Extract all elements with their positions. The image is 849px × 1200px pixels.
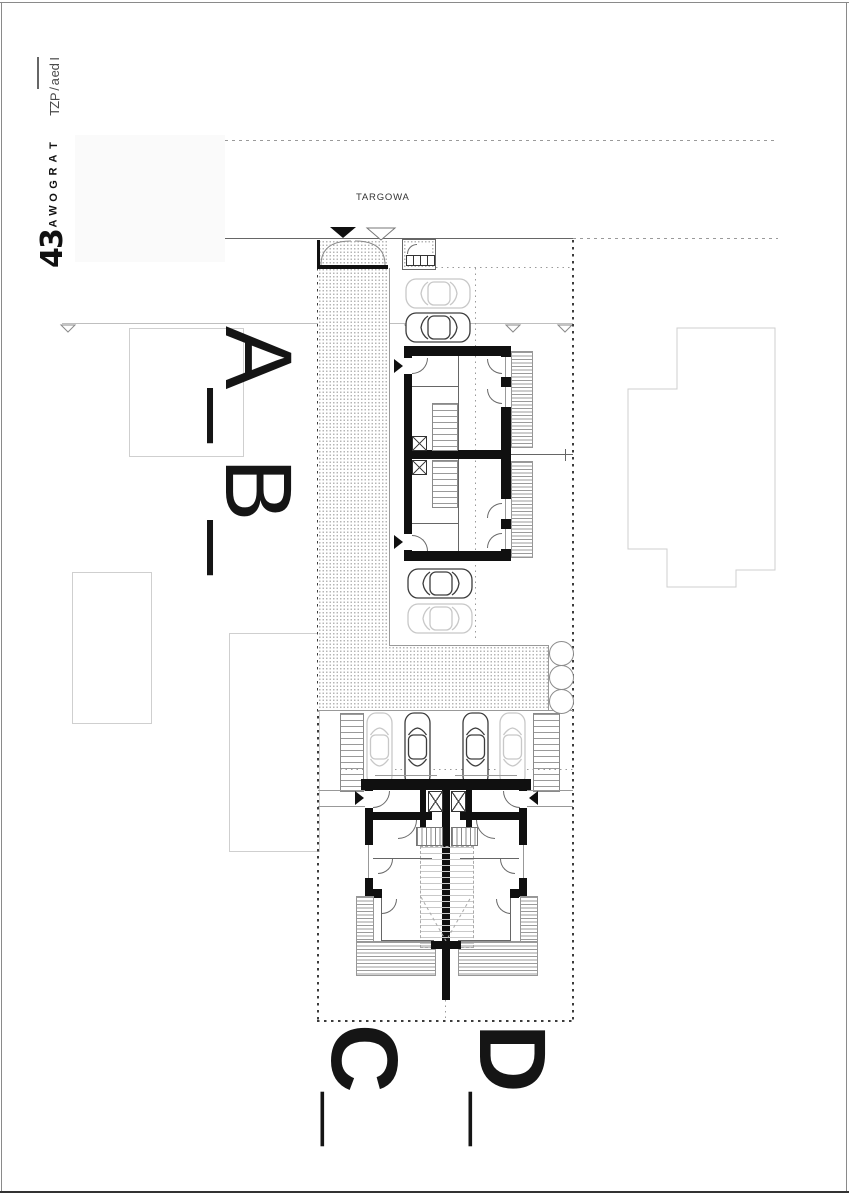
car-outline-light (405, 277, 471, 310)
party-wall-cross (431, 941, 461, 949)
section-marker-B: B_ (203, 458, 312, 574)
sidebar-rule (37, 57, 39, 89)
entrance-arrow-icon (355, 791, 364, 805)
door-arc (487, 359, 502, 374)
driveway-edge (318, 710, 573, 711)
vertical-char: A (47, 155, 60, 163)
driveway-edge (389, 268, 390, 646)
terrace-deck (356, 896, 374, 943)
bin (427, 255, 435, 266)
upper-entrance-gap (404, 534, 412, 550)
stairs (451, 827, 478, 846)
open-triangle-icon (60, 324, 76, 333)
window-line (368, 845, 369, 878)
interior-partition (458, 459, 459, 551)
driveway-paving (318, 268, 390, 646)
lower-entrance-gap (519, 791, 527, 808)
window-line (455, 775, 517, 776)
street-near-edge-line (225, 238, 573, 239)
tree-circle-icon (549, 641, 574, 666)
party-wall-axis-dotted (445, 1000, 446, 1022)
neighbor-building (72, 572, 152, 724)
door-arc (476, 820, 495, 839)
tree-circle-icon (549, 689, 574, 714)
entrance-arrow-open-icon (366, 227, 396, 241)
vertical-char: d (51, 63, 59, 70)
stairs (416, 827, 443, 846)
car-outline-dark (405, 311, 471, 344)
title-backplate (75, 135, 225, 262)
party-wall-extension-tick (565, 449, 566, 461)
interior-partition (412, 386, 459, 387)
door-arc (496, 899, 511, 914)
upper-building-wall-bottom (404, 551, 510, 561)
vertical-char: I (51, 57, 59, 61)
plot-boundary-right (572, 240, 574, 1022)
street-name-vertical: TARGOWA (42, 139, 66, 230)
window-gap (501, 529, 511, 549)
door-arc (373, 791, 390, 808)
vertical-char: T (47, 142, 60, 149)
door-arc (398, 820, 417, 839)
terrace-deck (520, 896, 538, 943)
upper-building-wall-top (404, 346, 510, 356)
page-border-bottom (0, 1191, 849, 1193)
window-line (505, 357, 506, 377)
shaft-box (412, 460, 427, 475)
vertical-char: W (47, 205, 60, 215)
driveway-paving-lower (318, 646, 549, 711)
window-line (505, 499, 506, 519)
vertical-char: O (48, 193, 61, 202)
car-outline-dark (407, 567, 473, 600)
vertical-char: G (48, 180, 61, 189)
neighbor-building (229, 633, 320, 852)
party-wall-extension-line (511, 454, 573, 455)
door-arc (378, 859, 393, 874)
section-marker-A: A_ (203, 326, 312, 442)
car-outline-light (407, 602, 473, 635)
page-border-right (846, 2, 847, 1193)
street-number-vertical: 34 (33, 229, 71, 267)
interior-partition (458, 356, 459, 450)
planting-strip (533, 713, 560, 792)
vertical-char: A (47, 220, 60, 228)
yard-top-line (436, 267, 573, 268)
stairs (432, 460, 458, 508)
vertical-char: 4 (43, 247, 62, 268)
vertical-char: 3 (43, 228, 62, 249)
street-label: TARGOWA (356, 192, 410, 203)
wall-corner (510, 889, 519, 898)
open-triangle-icon (557, 324, 573, 333)
vertical-char: T (51, 108, 59, 116)
interior-partition (412, 523, 459, 524)
neighbor-building (620, 320, 785, 595)
terrace-deck (511, 351, 533, 448)
window-gap (501, 499, 511, 519)
street-far-edge-line (225, 140, 778, 141)
lower-entrance-gap (365, 791, 373, 808)
door-arc (487, 503, 502, 518)
door-arc (487, 533, 502, 548)
entrance-arrow-icon (394, 535, 403, 549)
window-line (505, 529, 506, 549)
entrance-arrow-filled-icon (330, 227, 356, 238)
entrance-arrow-icon (529, 791, 538, 805)
terrace-deck (511, 461, 533, 558)
section-marker-D: D_ (457, 1024, 566, 1145)
upper-entrance-gap (404, 358, 412, 374)
window-line (505, 387, 506, 407)
open-triangle-icon (505, 324, 521, 333)
door-arc (412, 535, 428, 551)
walkway-line (318, 806, 365, 807)
project-label: Idea/PZT (44, 55, 66, 116)
door-arc (382, 899, 397, 914)
page-border-top (0, 2, 849, 3)
interior-wall (420, 790, 426, 827)
walkway-line (527, 806, 573, 807)
driveway-edge (390, 645, 549, 646)
shaft-box (412, 436, 427, 451)
interior-wall (466, 790, 472, 827)
stairs (432, 403, 458, 451)
plot-top-boundary-dashed (573, 238, 778, 239)
entrance-arrow-icon (394, 359, 403, 373)
page-border-left (1, 2, 2, 1193)
window-line (523, 845, 524, 878)
section-marker-C: C_ (309, 1024, 418, 1145)
tree-circle-icon (549, 665, 574, 690)
vertical-char: R (47, 168, 60, 176)
door-arc (487, 389, 502, 404)
wall-corner (373, 889, 382, 898)
drawing-sheet: Idea/PZT TARGOWA 34 TARGOWA (0, 0, 849, 1200)
gate-swing-arcs (320, 240, 386, 266)
terrace-deck (356, 941, 436, 976)
door-arc (503, 791, 520, 808)
door-arc (500, 859, 515, 874)
window-gap (501, 357, 511, 377)
upper-building-party-wall (404, 450, 511, 459)
window-gap (365, 845, 373, 878)
vertical-char: / (51, 87, 59, 91)
window-gap (501, 387, 511, 407)
shaft-box (451, 791, 466, 812)
stairs-direction-lines (420, 896, 472, 946)
vertical-char: a (51, 78, 59, 85)
shaft-box (428, 791, 443, 812)
vertical-char: e (51, 70, 59, 77)
door-arc (412, 358, 428, 374)
terrace-deck (458, 941, 538, 976)
window-line (375, 775, 437, 776)
